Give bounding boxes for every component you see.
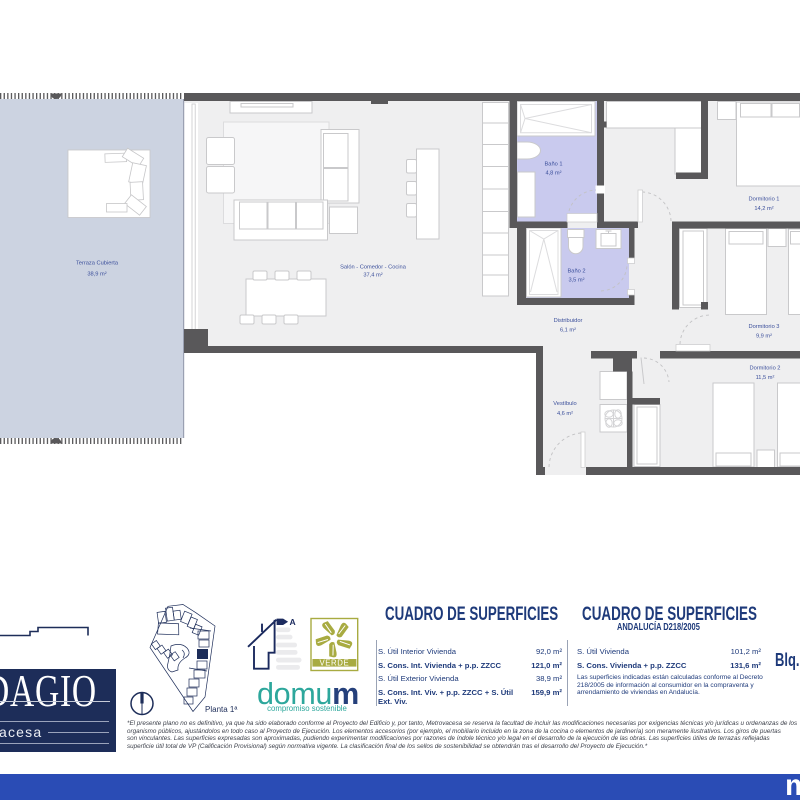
svg-text:Dormitorio 3: Dormitorio 3 <box>749 324 780 330</box>
svg-text:Baño 2: Baño 2 <box>567 269 585 275</box>
svg-text:14,2 m²: 14,2 m² <box>754 206 773 212</box>
svg-text:Dormitorio 2: Dormitorio 2 <box>750 366 781 372</box>
svg-text:Terraza Cubierta: Terraza Cubierta <box>76 261 119 267</box>
svg-text:Vestíbulo: Vestíbulo <box>553 401 576 407</box>
svg-text:Distribuidor: Distribuidor <box>554 318 583 324</box>
svg-text:9,9 m²: 9,9 m² <box>756 334 772 340</box>
svg-text:37,4 m²: 37,4 m² <box>363 272 382 278</box>
svg-text:Dormitorio 1: Dormitorio 1 <box>749 196 780 202</box>
svg-text:38,9 m²: 38,9 m² <box>87 272 106 278</box>
svg-text:Baño 1: Baño 1 <box>544 162 562 168</box>
svg-text:A: A <box>290 617 296 627</box>
svg-text:VERDE: VERDE <box>319 659 349 668</box>
svg-text:4,8 m²: 4,8 m² <box>545 171 561 177</box>
svg-text:11,5 m²: 11,5 m² <box>756 375 775 381</box>
svg-text:6,1 m²: 6,1 m² <box>560 328 576 334</box>
svg-text:4,6 m²: 4,6 m² <box>557 411 573 417</box>
svg-text:3,5 m²: 3,5 m² <box>568 278 584 284</box>
svg-text:Salón - Comedor - Cocina: Salón - Comedor - Cocina <box>340 264 407 270</box>
